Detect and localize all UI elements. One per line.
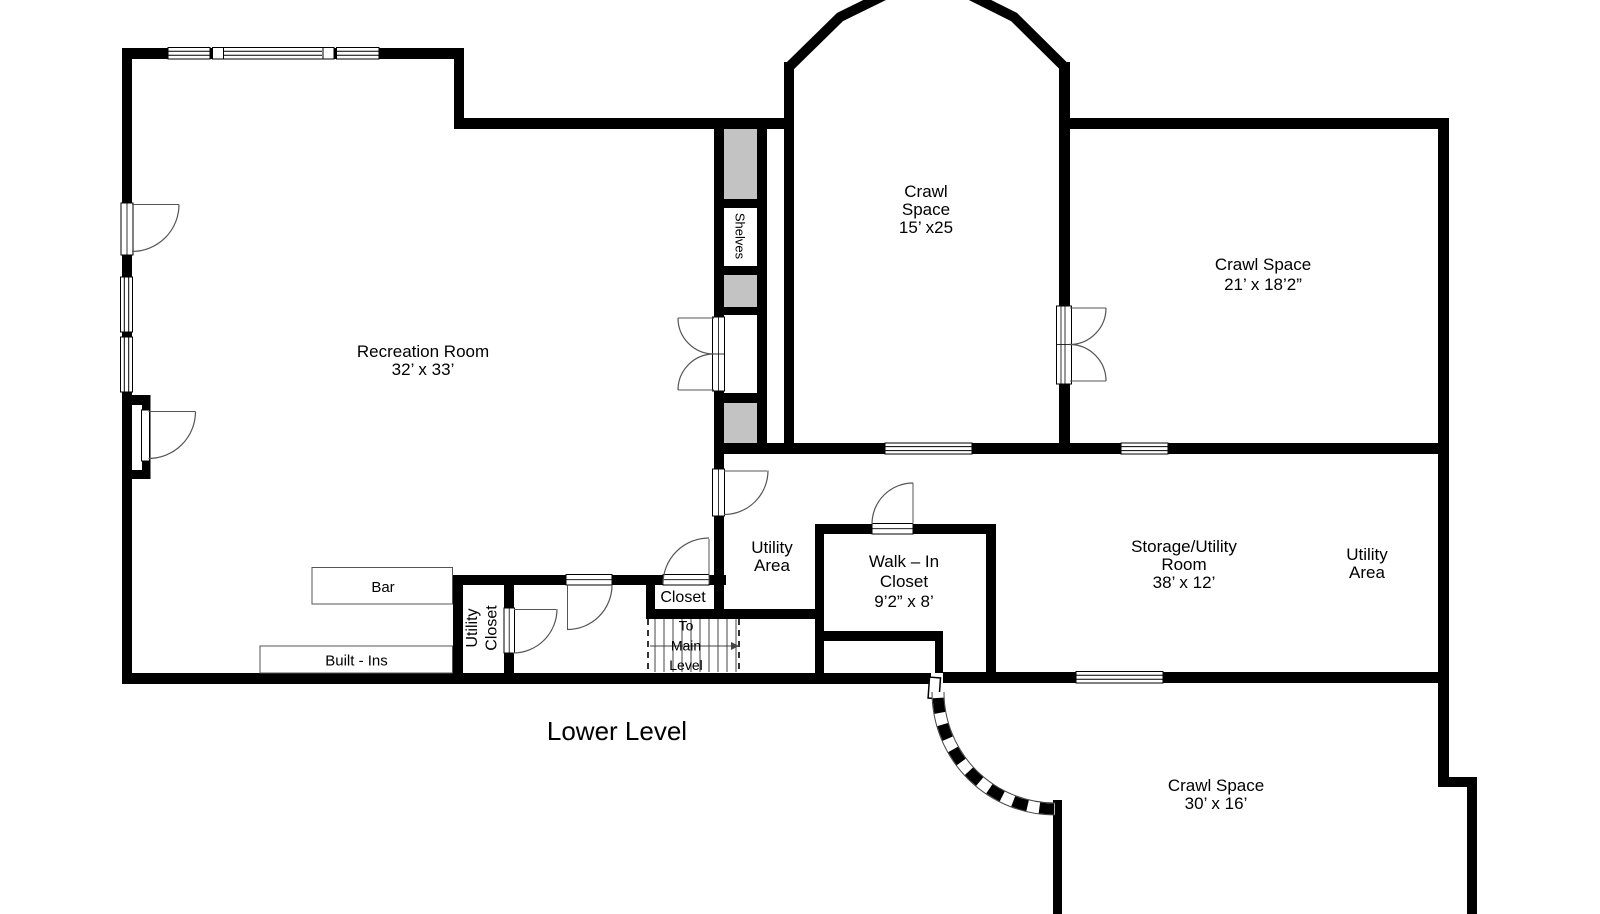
svg-text:Utility: Utility — [1346, 545, 1388, 564]
svg-text:Area: Area — [1349, 563, 1385, 582]
svg-text:To: To — [679, 618, 694, 634]
svg-text:Room: Room — [1161, 555, 1206, 574]
svg-text:Closet: Closet — [660, 589, 706, 606]
svg-text:9’2” x 8’: 9’2” x 8’ — [874, 592, 934, 611]
svg-text:Area: Area — [754, 556, 790, 575]
svg-text:Built - Ins: Built - Ins — [325, 653, 388, 670]
svg-text:Walk – In: Walk – In — [869, 552, 939, 571]
svg-text:Level: Level — [669, 657, 702, 673]
svg-text:Shelves: Shelves — [733, 213, 748, 260]
svg-text:Utility: Utility — [464, 608, 481, 647]
svg-text:38’ x 12’: 38’ x 12’ — [1153, 573, 1216, 592]
svg-text:Closet: Closet — [484, 605, 501, 651]
svg-text:Closet: Closet — [880, 572, 928, 591]
svg-text:Recreation Room: Recreation Room — [357, 342, 489, 361]
svg-text:Crawl: Crawl — [904, 182, 947, 201]
svg-text:Space: Space — [902, 200, 950, 219]
svg-text:15’ x25: 15’ x25 — [899, 218, 953, 237]
svg-text:32’ x 33’: 32’ x 33’ — [392, 360, 455, 379]
svg-text:Utility: Utility — [751, 538, 793, 557]
svg-text:Bar: Bar — [371, 579, 394, 596]
svg-text:Main: Main — [671, 638, 701, 654]
svg-text:Crawl Space: Crawl Space — [1215, 255, 1311, 274]
svg-text:Storage/Utility: Storage/Utility — [1131, 537, 1237, 556]
svg-text:Lower Level: Lower Level — [547, 716, 687, 746]
svg-text:21’ x 18’2”: 21’ x 18’2” — [1224, 275, 1302, 294]
svg-text:30’ x 16’: 30’ x 16’ — [1185, 794, 1248, 813]
svg-text:Crawl Space: Crawl Space — [1168, 776, 1264, 795]
